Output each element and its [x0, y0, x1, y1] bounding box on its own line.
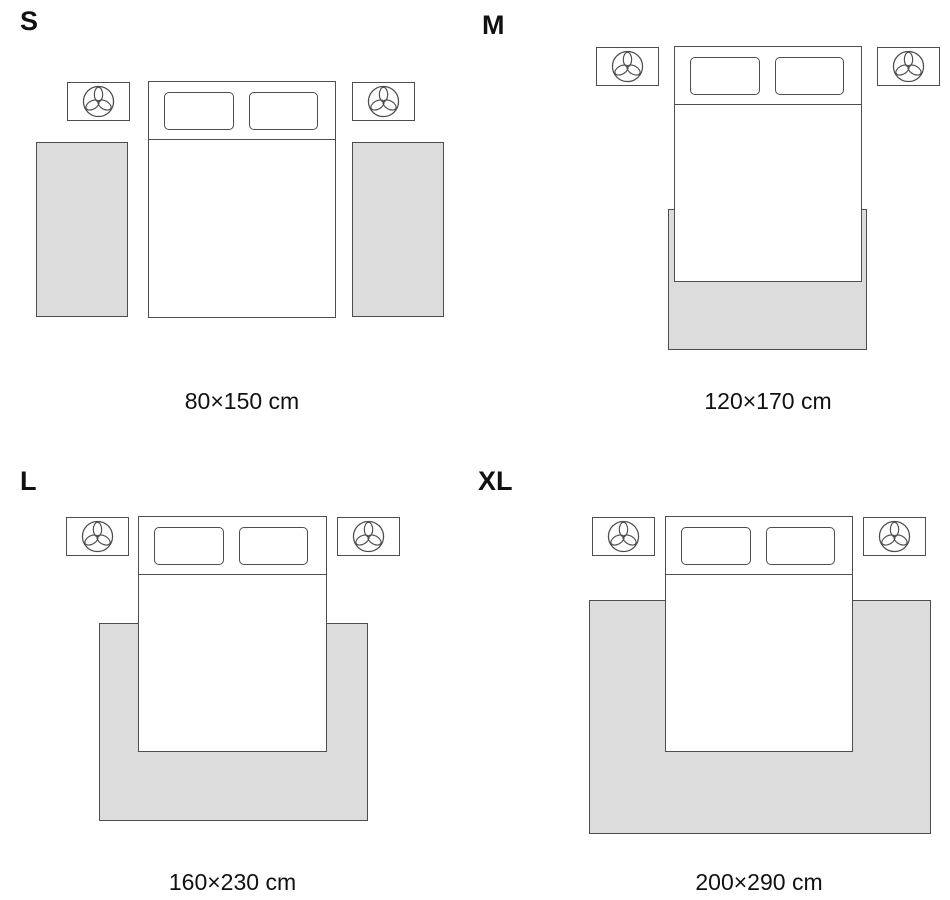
pillow-left — [164, 92, 234, 130]
nightstand-left — [66, 517, 129, 556]
pillow-left — [681, 527, 751, 565]
plant-icon — [367, 85, 400, 118]
size-dimensions: 80×150 cm — [148, 389, 336, 414]
nightstand-left — [67, 82, 130, 121]
plant-icon — [611, 50, 644, 83]
bed-headboard — [149, 82, 335, 140]
size-label: L — [20, 468, 37, 495]
bed-headboard — [666, 517, 852, 575]
bed — [148, 81, 336, 318]
bed — [138, 516, 327, 752]
plant-icon — [607, 520, 640, 553]
plant-icon — [892, 50, 925, 83]
size-dimensions: 160×230 cm — [138, 870, 327, 895]
pillow-left — [154, 527, 224, 565]
plant-icon — [878, 520, 911, 553]
rug-runner-left — [36, 142, 128, 317]
size-dimensions: 120×170 cm — [674, 389, 862, 414]
bed — [665, 516, 853, 752]
plant-icon — [352, 520, 385, 553]
size-dimensions: 200×290 cm — [665, 870, 853, 895]
bed-headboard — [139, 517, 326, 575]
panel-size-l: L 160×230 cm — [0, 450, 475, 900]
pillow-right — [766, 527, 835, 565]
plant-icon — [81, 520, 114, 553]
nightstand-left — [592, 517, 655, 556]
panel-size-m: M 120×170 cm — [475, 0, 950, 450]
pillow-right — [775, 57, 844, 95]
size-label: S — [20, 8, 38, 35]
pillow-left — [690, 57, 760, 95]
size-label: M — [482, 12, 505, 39]
plant-icon — [82, 85, 115, 118]
pillow-right — [239, 527, 308, 565]
bed-headboard — [675, 47, 861, 105]
bed — [674, 46, 862, 282]
panel-size-s: S 80×150 cm — [0, 0, 475, 450]
rug-runner-right — [352, 142, 444, 317]
size-label: XL — [478, 468, 513, 495]
nightstand-right — [352, 82, 415, 121]
nightstand-right — [863, 517, 926, 556]
pillow-right — [249, 92, 318, 130]
nightstand-right — [337, 517, 400, 556]
rug-size-guide-diagram: S 80×150 cm — [0, 0, 950, 900]
panel-size-xl: XL 200×290 cm — [475, 450, 950, 900]
nightstand-left — [596, 47, 659, 86]
nightstand-right — [877, 47, 940, 86]
